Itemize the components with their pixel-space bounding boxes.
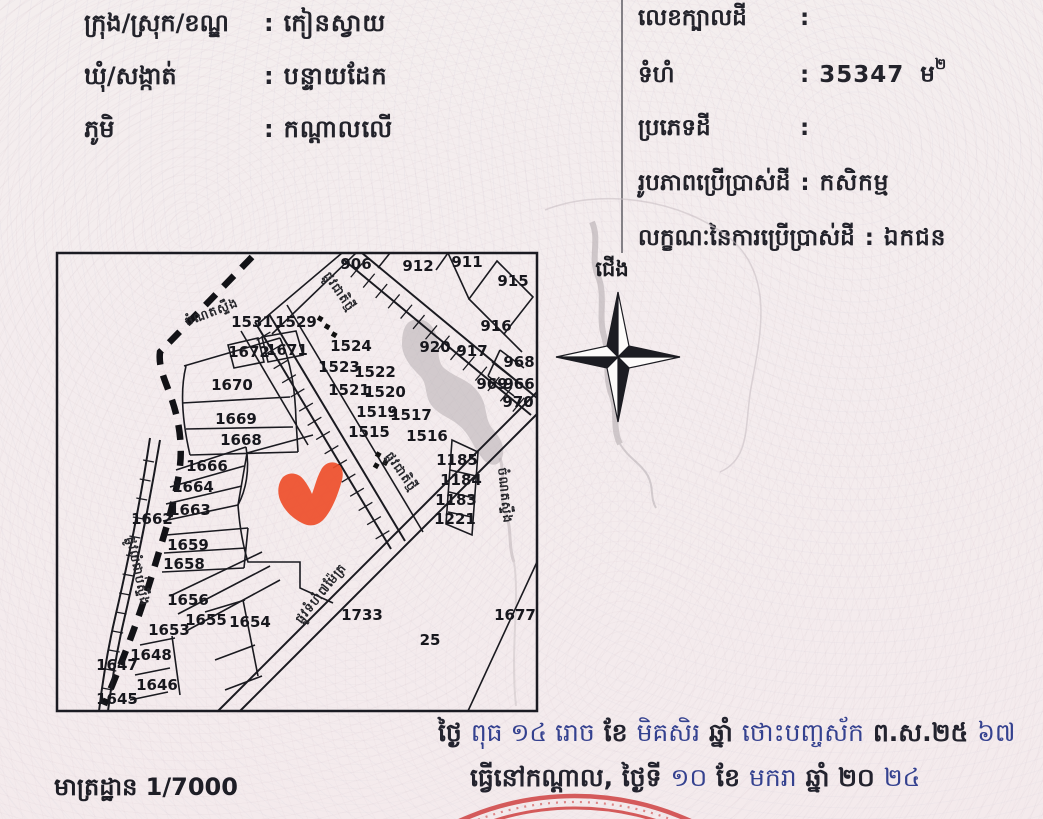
parcel-number-1516: 1516 — [406, 427, 448, 445]
subject-parcel-marker — [278, 462, 342, 525]
parcel-number-917: 917 — [456, 342, 487, 360]
parcel-number-1670: 1670 — [211, 376, 253, 394]
parcel-number-1659: 1659 — [167, 536, 209, 554]
parcel-numbers: 9069129119159169209179689699669701531152… — [96, 253, 536, 708]
scale-label: មាត្រដ្ឋាន 1/7000 — [54, 772, 238, 807]
stream-outside-tail — [620, 444, 656, 508]
parcel-number-1655: 1655 — [185, 611, 227, 629]
parcel-number-1184: 1184 — [440, 471, 482, 489]
handwritten-text: មករា — [749, 763, 797, 792]
road-labels: ចំណតស្ទឹងផ្លូវជាតិថ្មីផ្លូវជាតិថ្មីផ្លូវ… — [121, 268, 517, 628]
parcel-number-1645: 1645 — [96, 690, 138, 708]
parcel-number-911: 911 — [451, 253, 482, 271]
parcel-number-1515: 1515 — [348, 423, 390, 441]
parcel-number-915: 915 — [497, 272, 528, 290]
parcel-number-968: 968 — [503, 353, 534, 371]
parcel-number-1183: 1183 — [435, 491, 477, 509]
issue-date-line: ធ្វើនៅកណ្ដាល, ថ្ងៃទី១០ខែមករាឆ្នាំ ២០២៤ — [470, 763, 1038, 799]
handwritten-text: ពុធ ១៤ រោច — [471, 718, 595, 747]
parcel-number-1733: 1733 — [341, 606, 383, 624]
parcel-number-1646: 1646 — [136, 676, 178, 694]
parcel-number-1664: 1664 — [172, 478, 214, 496]
road-label: ផ្លូវជាតិថ្មី — [318, 268, 359, 316]
parcel-number-25: 25 — [420, 631, 441, 649]
printed-text: ឆ្នាំ — [709, 718, 733, 747]
handwritten-text: ថោះបញ្ចស័ក — [742, 718, 864, 747]
north-label: ជើង — [595, 255, 628, 281]
parcel-number-1656: 1656 — [167, 591, 209, 609]
compass-rose-icon — [556, 292, 680, 422]
faint-region-boundary — [545, 199, 761, 472]
parcel-number-1654: 1654 — [229, 613, 271, 631]
parcel-number-1666: 1666 — [186, 457, 228, 475]
stream-tail-lower — [514, 562, 516, 706]
printed-text: ព.ស.២៥ — [873, 718, 968, 747]
handwritten-text: ១០ — [671, 763, 708, 792]
road-label: ចំណតស្ទឹង — [494, 467, 517, 524]
handwritten-text: ២៤ — [884, 763, 921, 792]
land-title-document: ក្រុង/ស្រុក/ខណ្ឌ : កៀនស្វាយ ឃុំ/សង្កាត់ … — [0, 0, 1043, 819]
parcel-number-1529: 1529 — [275, 313, 317, 331]
printed-text: ធ្វើនៅកណ្ដាល, ថ្ងៃទី — [470, 763, 662, 792]
parcel-number-1531: 1531 — [231, 313, 273, 331]
parcel-number-1677: 1677 — [494, 606, 536, 624]
parcel-number-1185: 1185 — [436, 451, 478, 469]
cadastral-map: 9069129119159169209179689699669701531152… — [0, 0, 1043, 819]
parcel-number-916: 916 — [480, 317, 511, 335]
parcel-number-1672: 1672 — [228, 343, 270, 361]
parcel-number-1522: 1522 — [354, 363, 396, 381]
parcel-number-970: 970 — [502, 393, 533, 411]
parcel-number-1524: 1524 — [330, 337, 372, 355]
parcel-number-1663: 1663 — [169, 501, 211, 519]
printed-text: ថ្ងៃ — [438, 718, 462, 747]
handwritten-text: ៦៧ — [977, 718, 1015, 747]
printed-text: ខែ — [604, 718, 628, 747]
printed-text: ខែ — [716, 763, 740, 792]
parcel-number-1221: 1221 — [434, 510, 476, 528]
parcel-number-1668: 1668 — [220, 431, 262, 449]
parcel-number-906: 906 — [340, 255, 371, 273]
handwritten-text: មិគសិរ — [637, 718, 700, 747]
parcel-number-920: 920 — [419, 338, 450, 356]
parcel-number-1669: 1669 — [215, 410, 257, 428]
lunar-date-line: ថ្ងៃពុធ ១៤ រោចខែមិគសិរឆ្នាំថោះបញ្ចស័កព.ស… — [438, 718, 1038, 754]
parcel-number-1662: 1662 — [131, 510, 173, 528]
parcel-number-1520: 1520 — [364, 383, 406, 401]
printed-text: ឆ្នាំ ២០ — [806, 763, 875, 792]
parcel-number-912: 912 — [402, 257, 433, 275]
parcel-number-1653: 1653 — [148, 621, 190, 639]
parcel-number-1671: 1671 — [266, 341, 308, 359]
date-block: ថ្ងៃពុធ ១៤ រោចខែមិគសិរឆ្នាំថោះបញ្ចស័កព.ស… — [438, 718, 1038, 808]
parcel-number-1517: 1517 — [390, 406, 432, 424]
parcel-number-1647: 1647 — [96, 656, 138, 674]
parcel-number-966: 966 — [503, 375, 534, 393]
parcel-number-1658: 1658 — [163, 555, 205, 573]
